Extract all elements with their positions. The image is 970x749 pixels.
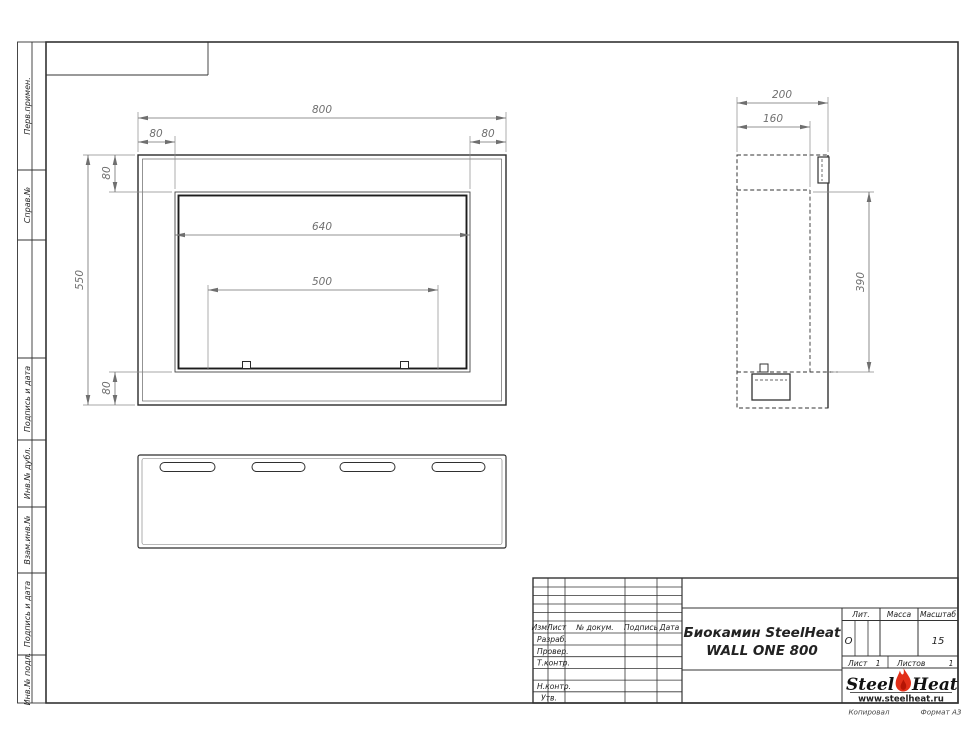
front-view: 800 80 80 80 550 80 640 500 [74, 104, 506, 405]
dim-side-total-depth: 200 [772, 89, 792, 101]
sidebar-label-sprav-no: Справ.№ [23, 187, 32, 223]
lit-mass-scale: Лит. Масса Масштаб О 15 [845, 610, 957, 647]
footer-format: Формат А3 [921, 708, 962, 717]
side-extension-lines [737, 97, 874, 372]
top-left-reference-box [46, 42, 208, 75]
col-data: Дата [659, 623, 680, 632]
dim-front-left-margin: 80 [149, 128, 163, 140]
vent-slot-2 [252, 463, 305, 472]
dim-front-total-width: 800 [312, 104, 332, 116]
sheet-value: 1 [876, 659, 881, 668]
dim-front-right-margin: 80 [481, 128, 495, 140]
side-hidden-outline [737, 155, 828, 408]
sheet-frame [18, 42, 959, 703]
side-burner-box [752, 374, 790, 400]
sidebar-label-podpis-data-1: Подпись и дата [23, 366, 32, 432]
dim-front-burner-span: 500 [312, 276, 332, 288]
front-dimension-lines [88, 118, 506, 405]
side-burner-clip [760, 364, 768, 372]
inner-frame-border [46, 42, 958, 703]
front-burner-clip-left [243, 362, 251, 369]
slotted-panel-view [138, 455, 506, 548]
col-list: Лист [546, 623, 567, 632]
vent-slot-3 [340, 463, 395, 472]
dim-side-inner-depth: 160 [763, 113, 783, 125]
sheet-footer: Копировал Формат А3 [848, 708, 961, 717]
front-extension-lines [83, 112, 506, 405]
drawing-sheet: Перв.примен. Справ.№ Подпись и дата Инв.… [0, 0, 970, 749]
logo-word-steel: Steel [846, 675, 895, 695]
sidebar-label-vzam-inv: Взам.инв.№ [23, 515, 32, 564]
dim-front-opening-width: 640 [312, 221, 332, 233]
lit-label: Лит. [851, 610, 869, 619]
col-podpis: Подпись [624, 623, 658, 632]
row-prover: Провер. [537, 647, 569, 656]
vent-slots [160, 463, 485, 472]
sheets-label: Листов [896, 659, 926, 668]
sidebar-label-inv-podl: Инв.№ подл. [23, 653, 32, 706]
steelheat-logo: Steel Heat www.steelheat.ru [846, 668, 958, 705]
sheet-numbers: Лист 1 Листов 1 [847, 659, 953, 668]
sheet-label: Лист [847, 659, 868, 668]
row-razrab: Разраб. [537, 635, 567, 644]
row-tkontr: Т.контр. [537, 659, 570, 668]
logo-website: www.steelheat.ru [858, 695, 944, 705]
scale-label: Масштаб [920, 610, 956, 619]
doc-title-line2: WALL ONE 800 [706, 643, 818, 659]
dim-side-opening-height: 390 [855, 272, 867, 292]
sidebar-labels: Перв.примен. Справ.№ Подпись и дата Инв.… [23, 77, 32, 705]
dim-front-bottom-margin: 80 [101, 381, 113, 395]
revision-header: Изм. Лист № докум. Подпись Дата [532, 623, 680, 632]
vent-slot-1 [160, 463, 215, 472]
side-view: 200 160 390 [737, 89, 874, 408]
sheets-value: 1 [949, 659, 954, 668]
doc-title-line1: Биокамин SteelHeat [684, 625, 841, 641]
front-burner-clip-right [401, 362, 409, 369]
side-mount-bracket [818, 157, 829, 183]
logo-word-heat: Heat [911, 675, 958, 695]
col-doc: № докум. [575, 623, 613, 632]
dim-front-total-height: 550 [74, 270, 86, 290]
sidebar-label-podpis-data-2: Подпись и дата [23, 581, 32, 647]
scale-value: 15 [932, 636, 945, 647]
side-dimension-lines [737, 103, 869, 372]
sidebar-label-perv-primen: Перв.примен. [23, 77, 32, 135]
title-block: Изм. Лист № докум. Подпись Дата Разраб. … [532, 578, 958, 705]
footer-kopiroval: Копировал [848, 708, 889, 717]
row-nkontr: Н.контр. [537, 682, 571, 691]
lit-value: О [845, 636, 853, 647]
sidebar-label-inv-dubl: Инв.№ дубл. [23, 447, 32, 499]
mass-label: Масса [887, 610, 912, 619]
dim-front-top-margin: 80 [101, 166, 113, 180]
vent-slot-4 [432, 463, 485, 472]
flame-icon [896, 668, 911, 692]
row-utv: Утв. [541, 694, 557, 703]
document-title: Биокамин SteelHeat WALL ONE 800 [684, 625, 841, 659]
drawing-canvas: Перв.примен. Справ.№ Подпись и дата Инв.… [0, 0, 970, 749]
panel-outline [138, 455, 506, 548]
